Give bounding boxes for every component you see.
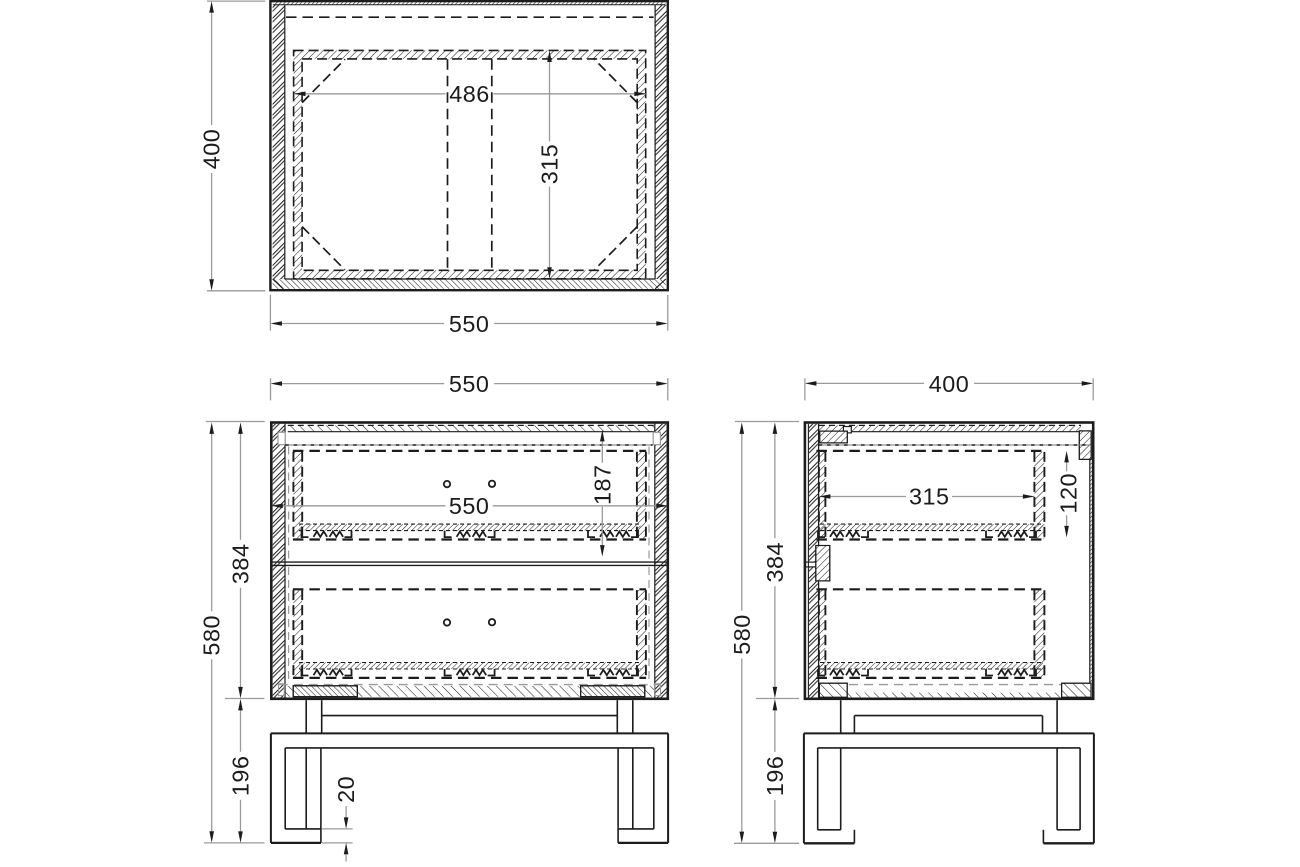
- svg-text:550: 550: [449, 493, 490, 519]
- svg-text:120: 120: [1055, 473, 1081, 514]
- svg-text:315: 315: [909, 484, 950, 510]
- svg-text:550: 550: [449, 371, 490, 397]
- svg-text:550: 550: [449, 311, 490, 337]
- svg-text:384: 384: [228, 544, 254, 585]
- svg-text:580: 580: [199, 615, 225, 656]
- svg-text:580: 580: [729, 614, 755, 655]
- svg-text:20: 20: [333, 776, 359, 803]
- svg-text:384: 384: [762, 542, 788, 583]
- svg-text:315: 315: [537, 144, 563, 185]
- svg-text:187: 187: [589, 464, 615, 505]
- svg-text:400: 400: [929, 371, 970, 397]
- svg-text:196: 196: [762, 756, 788, 797]
- svg-text:196: 196: [228, 756, 254, 797]
- svg-text:486: 486: [449, 81, 490, 107]
- svg-text:400: 400: [199, 129, 225, 170]
